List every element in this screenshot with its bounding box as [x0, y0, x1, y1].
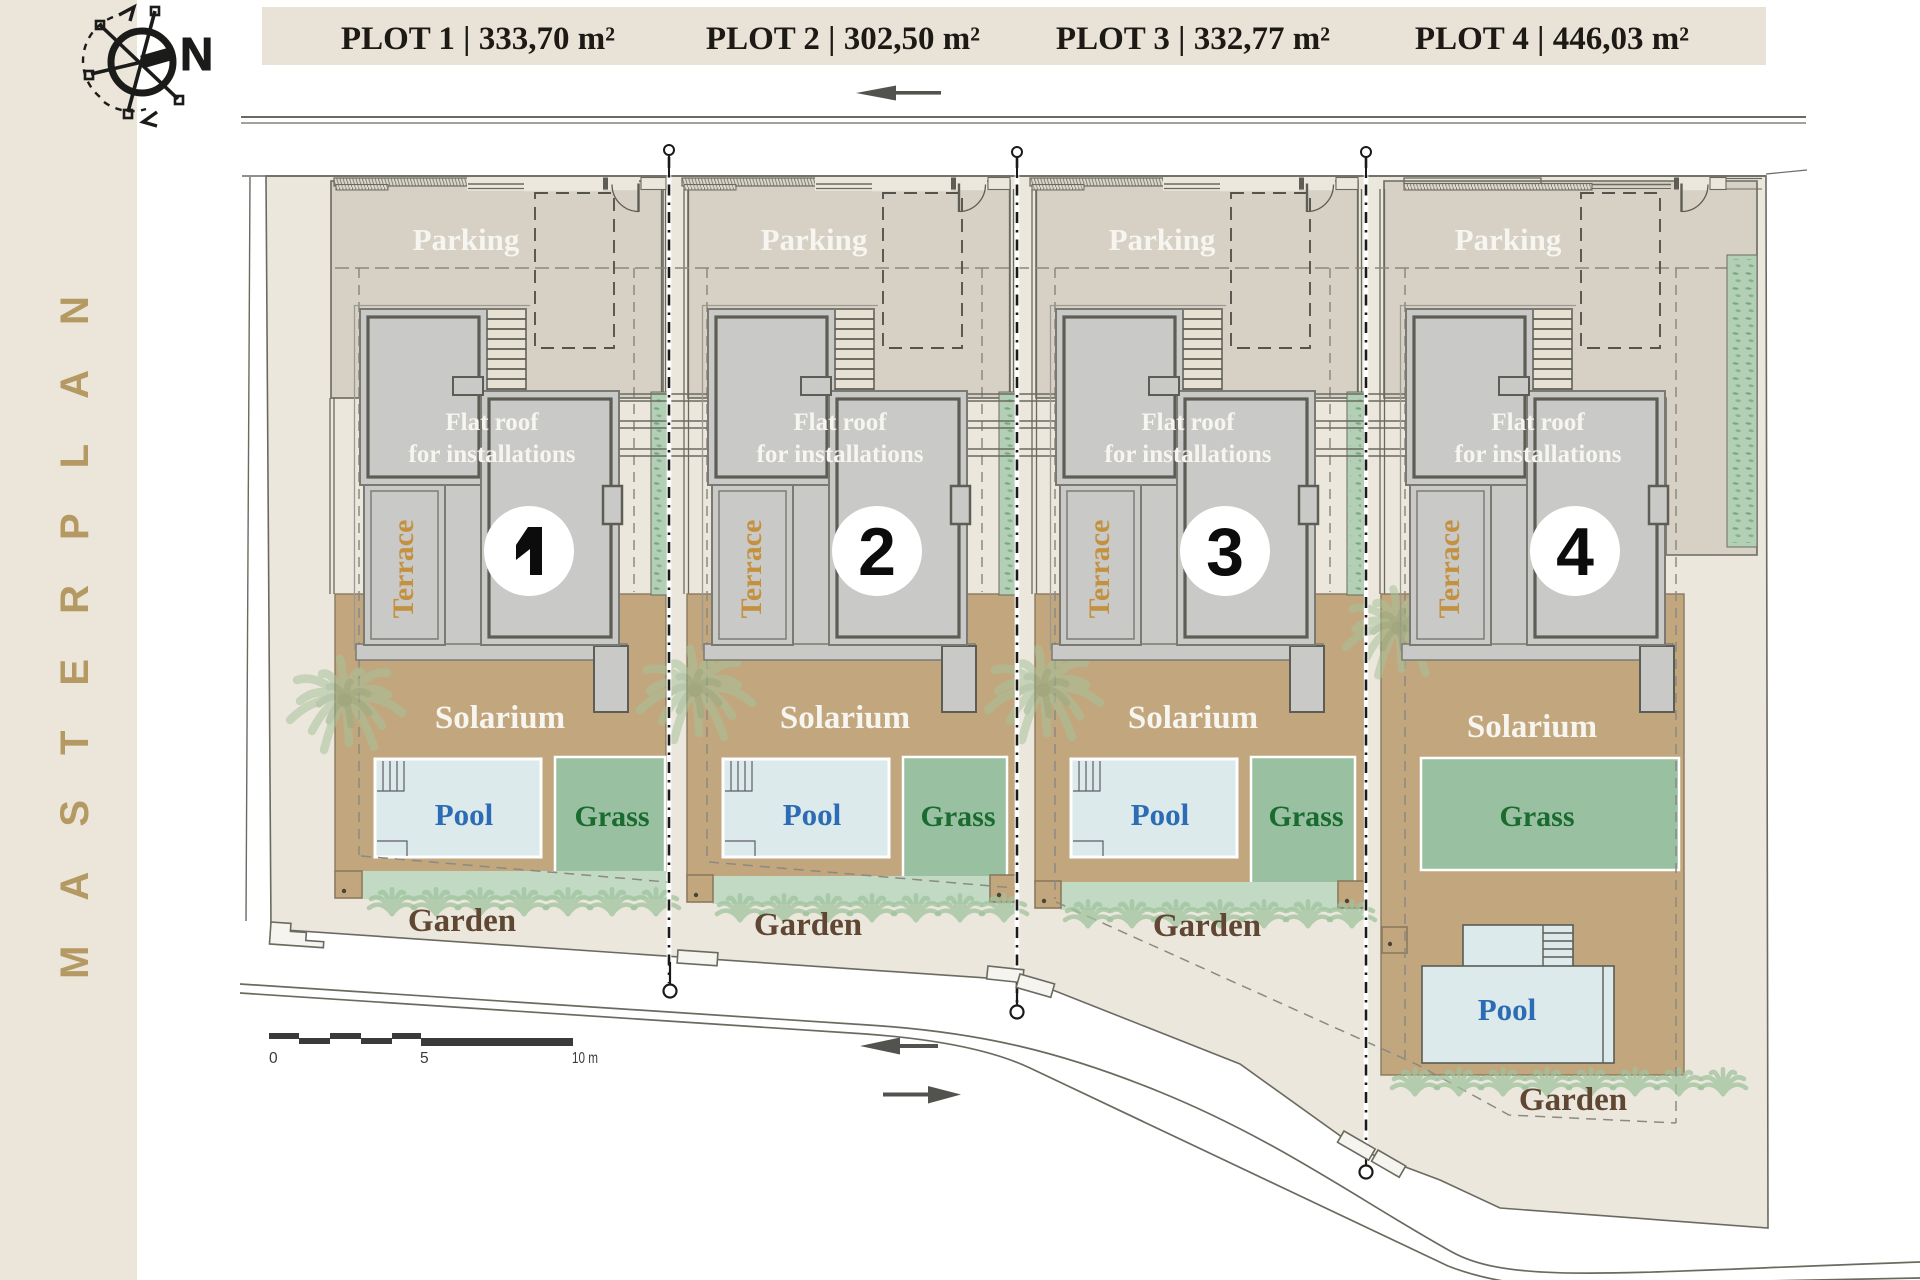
svg-text:Terrace: Terrace — [1083, 520, 1116, 619]
svg-text:10 m: 10 m — [572, 1050, 598, 1067]
svg-text:0: 0 — [269, 1050, 278, 1067]
svg-text:N: N — [180, 28, 213, 80]
svg-text:PLOT 1 | 333,70 m²: PLOT 1 | 333,70 m² — [341, 21, 615, 57]
svg-text:for installations: for installations — [1105, 441, 1272, 468]
svg-text:Grass: Grass — [921, 800, 996, 833]
svg-text:Flat roof: Flat roof — [793, 409, 887, 436]
svg-text:Flat roof: Flat roof — [445, 409, 539, 436]
svg-text:Garden: Garden — [1153, 908, 1261, 944]
svg-text:2: 2 — [858, 514, 896, 590]
svg-text:Solarium: Solarium — [1467, 709, 1597, 745]
svg-text:4: 4 — [1556, 514, 1594, 590]
svg-text:Terrace: Terrace — [1433, 520, 1466, 619]
svg-text:Terrace: Terrace — [387, 520, 420, 619]
svg-text:Parking: Parking — [761, 222, 868, 257]
svg-text:for installations: for installations — [1455, 441, 1622, 468]
svg-text:Solarium: Solarium — [1128, 700, 1258, 736]
svg-text:PLOT 3 | 332,77 m²: PLOT 3 | 332,77 m² — [1056, 21, 1330, 57]
svg-text:PLOT 2 | 302,50 m²: PLOT 2 | 302,50 m² — [706, 21, 980, 57]
svg-text:Garden: Garden — [408, 903, 516, 939]
svg-text:Pool: Pool — [783, 797, 842, 832]
svg-text:Terrace: Terrace — [735, 520, 768, 619]
svg-text:Flat roof: Flat roof — [1491, 409, 1585, 436]
svg-text:MASTERPLAN: MASTERPLAN — [53, 251, 97, 979]
svg-text:Parking: Parking — [1455, 222, 1562, 257]
svg-text:3: 3 — [1206, 514, 1244, 590]
svg-text:Parking: Parking — [1109, 222, 1216, 257]
svg-text:Solarium: Solarium — [780, 700, 910, 736]
svg-text:Garden: Garden — [754, 907, 862, 943]
svg-text:Grass: Grass — [1500, 800, 1575, 833]
svg-text:Parking: Parking — [413, 222, 520, 257]
svg-text:for installations: for installations — [757, 441, 924, 468]
svg-text:5: 5 — [420, 1050, 429, 1067]
svg-text:for installations: for installations — [409, 441, 576, 468]
svg-text:Garden: Garden — [1519, 1082, 1627, 1118]
svg-text:Solarium: Solarium — [435, 700, 565, 736]
svg-text:Pool: Pool — [435, 797, 494, 832]
svg-text:Pool: Pool — [1478, 992, 1537, 1027]
svg-text:Flat roof: Flat roof — [1141, 409, 1235, 436]
svg-text:Grass: Grass — [1269, 800, 1344, 833]
svg-text:PLOT 4 | 446,03 m²: PLOT 4 | 446,03 m² — [1415, 21, 1689, 57]
svg-text:Grass: Grass — [575, 800, 650, 833]
svg-text:Pool: Pool — [1131, 797, 1190, 832]
